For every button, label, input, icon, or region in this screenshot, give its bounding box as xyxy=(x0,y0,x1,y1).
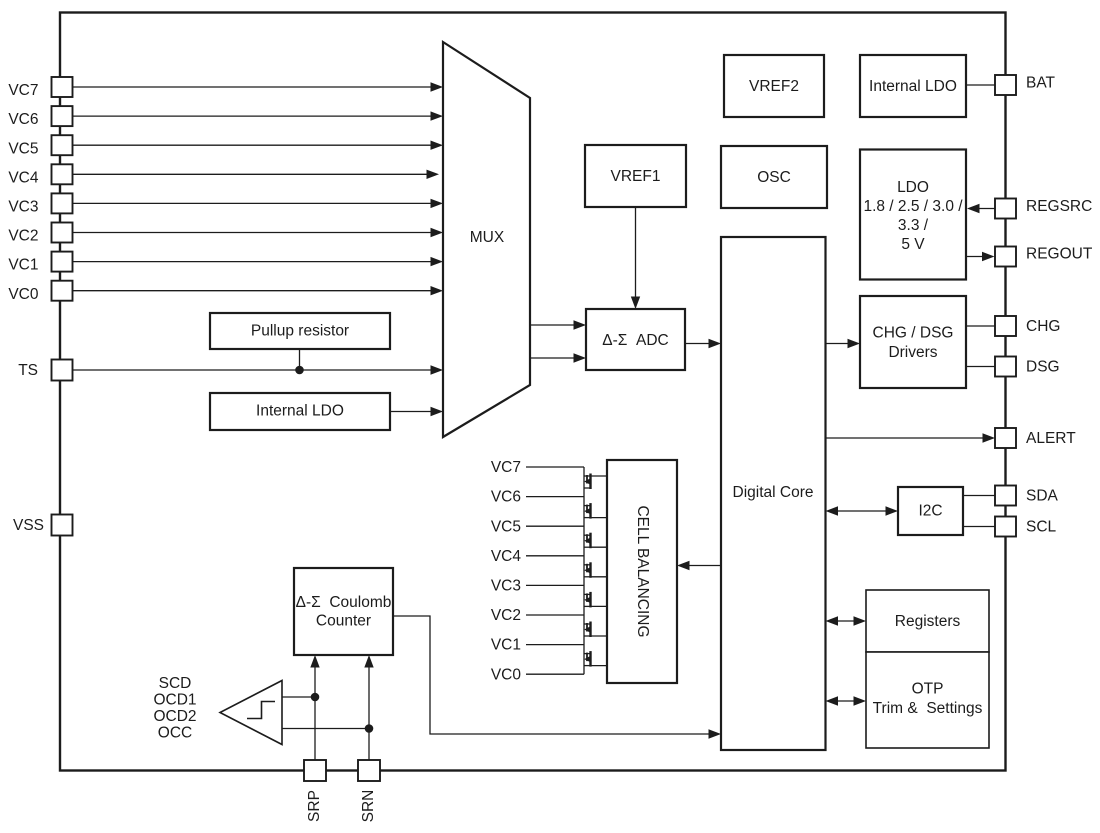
svg-text:VC1: VC1 xyxy=(8,257,38,274)
svg-text:Internal LDO: Internal LDO xyxy=(256,403,344,420)
svg-text:CHG: CHG xyxy=(1026,318,1060,335)
svg-text:BAT: BAT xyxy=(1026,75,1056,92)
svg-text:VC5: VC5 xyxy=(491,518,521,535)
svg-text:VC3: VC3 xyxy=(8,198,38,215)
svg-text:VC6: VC6 xyxy=(491,489,521,506)
svg-text:VC2: VC2 xyxy=(491,607,521,624)
svg-text:OCD2: OCD2 xyxy=(153,708,196,725)
svg-text:Registers: Registers xyxy=(895,613,961,630)
svg-text:5 V: 5 V xyxy=(901,236,925,253)
svg-text:VC1: VC1 xyxy=(491,637,521,654)
svg-text:Digital Core: Digital Core xyxy=(733,484,814,501)
svg-text:Δ-Σ ADC: Δ-Σ ADC xyxy=(602,332,668,349)
svg-text:DSG: DSG xyxy=(1026,359,1060,376)
svg-text:SCL: SCL xyxy=(1026,519,1057,536)
svg-text:VC7: VC7 xyxy=(491,459,521,476)
svg-text:Δ-Σ Coulomb: Δ-Σ Coulomb xyxy=(296,594,392,611)
svg-text:SRN: SRN xyxy=(360,790,377,823)
svg-text:1.8 / 2.5 / 3.0 /: 1.8 / 2.5 / 3.0 / xyxy=(863,198,963,215)
svg-text:VC0: VC0 xyxy=(8,286,39,303)
svg-text:VC4: VC4 xyxy=(491,548,522,565)
svg-text:OCD1: OCD1 xyxy=(153,692,196,709)
svg-text:ALERT: ALERT xyxy=(1026,430,1076,447)
svg-text:OSC: OSC xyxy=(757,169,791,186)
svg-text:VC4: VC4 xyxy=(8,169,39,186)
svg-text:SCD: SCD xyxy=(159,675,192,692)
svg-text:CHG / DSG: CHG / DSG xyxy=(873,325,954,342)
svg-text:Drivers: Drivers xyxy=(888,344,937,361)
svg-text:VC0: VC0 xyxy=(491,666,522,683)
svg-text:Pullup resistor: Pullup resistor xyxy=(251,323,349,340)
svg-text:VC3: VC3 xyxy=(491,577,521,594)
svg-text:VC6: VC6 xyxy=(8,111,38,128)
svg-text:OCC: OCC xyxy=(158,725,192,742)
svg-text:CELL BALANCING: CELL BALANCING xyxy=(634,505,651,637)
svg-text:3.3 /: 3.3 / xyxy=(898,217,929,234)
svg-text:VC5: VC5 xyxy=(8,140,38,157)
svg-text:VREF2: VREF2 xyxy=(749,78,799,95)
svg-text:REGSRC: REGSRC xyxy=(1026,198,1092,215)
svg-text:VC2: VC2 xyxy=(8,228,38,245)
svg-text:VSS: VSS xyxy=(13,517,44,534)
svg-text:LDO: LDO xyxy=(897,179,929,196)
svg-text:Trim & Settings: Trim & Settings xyxy=(873,700,983,717)
svg-text:SDA: SDA xyxy=(1026,488,1059,505)
svg-text:VREF1: VREF1 xyxy=(611,168,661,185)
svg-text:SRP: SRP xyxy=(306,790,323,822)
svg-text:I2C: I2C xyxy=(918,503,942,520)
svg-text:TS: TS xyxy=(18,362,38,379)
svg-text:OTP: OTP xyxy=(912,681,944,698)
svg-text:Internal LDO: Internal LDO xyxy=(869,78,957,95)
svg-text:REGOUT: REGOUT xyxy=(1026,246,1093,263)
svg-text:VC7: VC7 xyxy=(8,82,38,99)
svg-text:MUX: MUX xyxy=(470,229,505,246)
svg-text:Counter: Counter xyxy=(316,613,371,630)
